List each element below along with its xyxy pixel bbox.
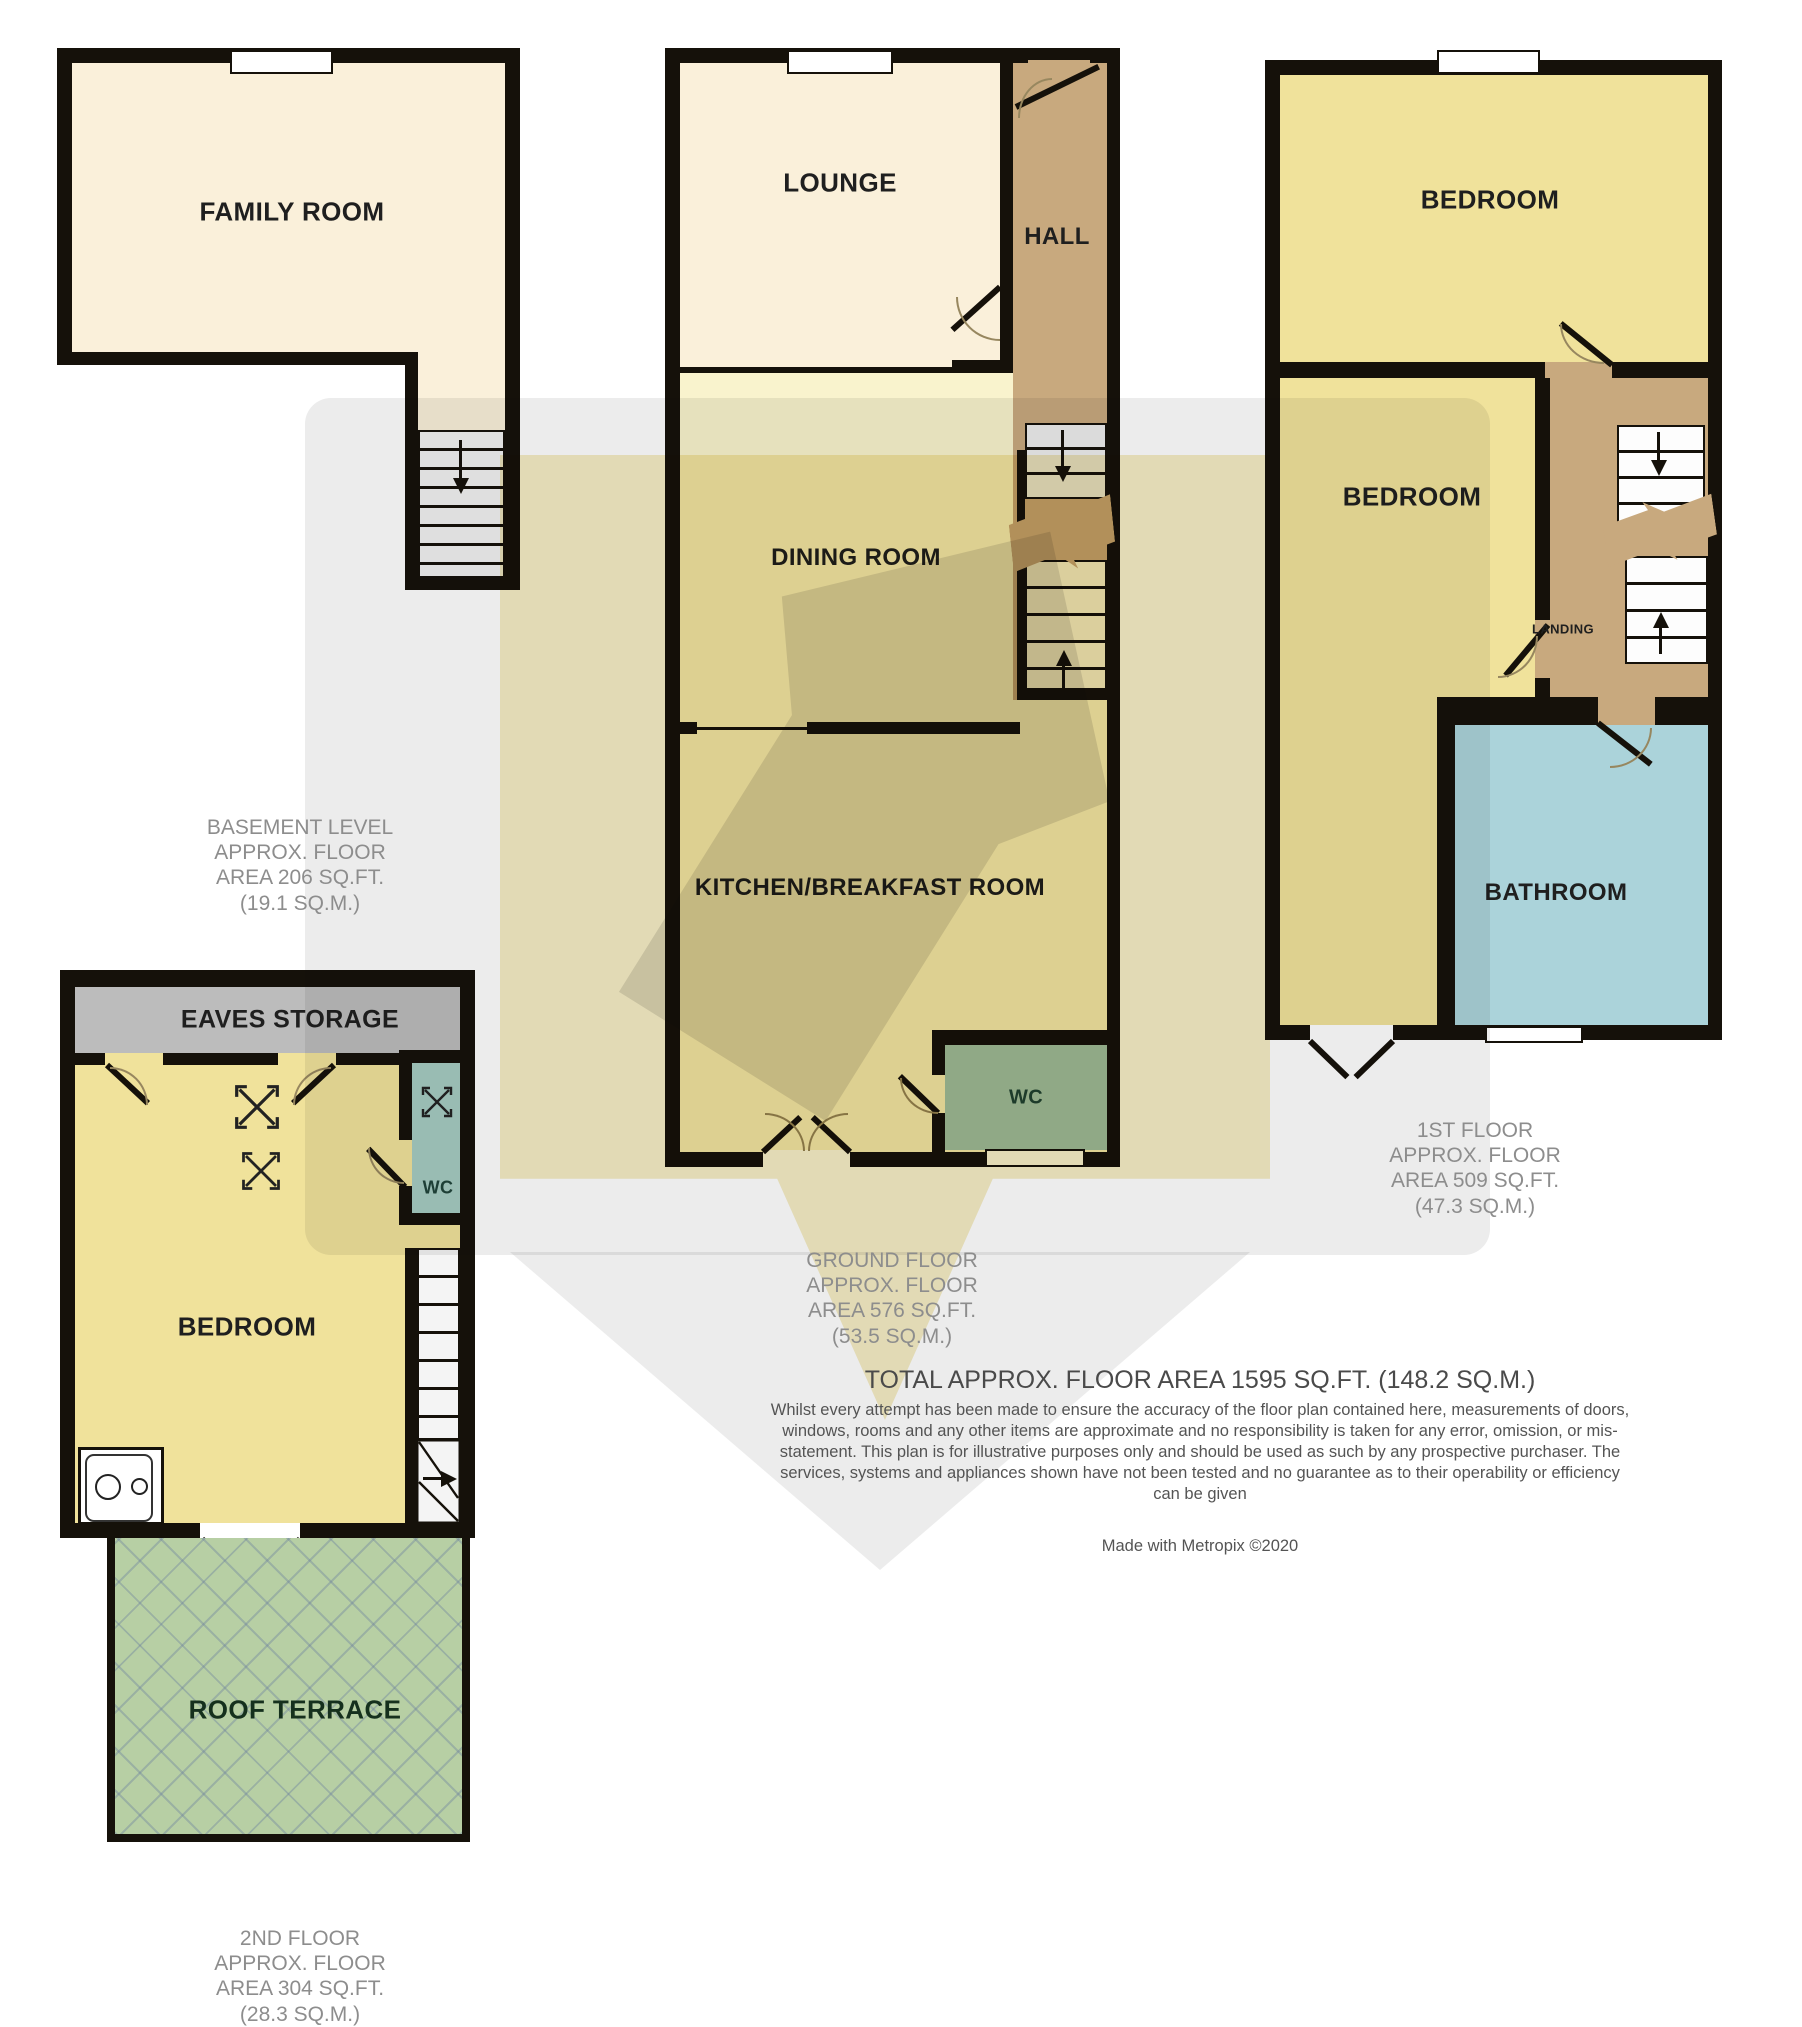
basement-area-label: BASEMENT LEVEL APPROX. FLOOR AREA 206 SQ…	[130, 815, 470, 916]
family-room-label: FAMILY ROOM	[200, 197, 385, 228]
terrace-french-door-gap	[200, 1523, 300, 1538]
landing-label: LANDING	[1532, 622, 1594, 637]
lounge-floor	[680, 63, 1000, 367]
bedroom-back-label: BEDROOM	[1343, 482, 1482, 513]
sloped-ceiling-marker-icon	[228, 1078, 286, 1136]
ground-stairs-down-shaft	[1061, 430, 1064, 468]
shower-drain-icon	[131, 1478, 148, 1495]
shower-head-icon	[95, 1474, 121, 1500]
family-room-window	[230, 50, 333, 74]
bedroom-landing-wall-upper	[1535, 378, 1550, 620]
basement-stairs-arrow-shaft	[459, 440, 462, 480]
ground-stairs-up-shaft	[1062, 664, 1065, 690]
kitchen-label: KITCHEN/BREAKFAST ROOM	[695, 874, 1045, 902]
credit-text: Made with Metropix ©2020	[770, 1536, 1630, 1557]
first-area-label: 1ST FLOOR APPROX. FLOOR AREA 509 SQ.FT. …	[1305, 1118, 1645, 1219]
ground-stairs-down-arrow-icon	[1055, 466, 1071, 482]
second-wc-bottom-wall	[399, 1213, 460, 1225]
bedroom-back-floor-lower	[1280, 697, 1437, 1025]
bedroom-back-french-right-leaf	[1354, 1039, 1396, 1079]
roof-terrace-floor	[115, 1538, 462, 1834]
second-wc-top-wall	[399, 1050, 460, 1063]
bedroom-divider-wall-right	[1612, 362, 1722, 378]
second-area-label: 2ND FLOOR APPROX. FLOOR AREA 304 SQ.FT. …	[130, 1926, 470, 2027]
eaves-wall-b	[163, 1053, 278, 1065]
wc-left-wall-a	[932, 1045, 945, 1075]
lounge-label: LOUNGE	[783, 168, 897, 199]
eaves-wall-a	[75, 1053, 105, 1065]
bathroom-left-wall	[1437, 725, 1455, 1025]
dining-kitchen-opening-line	[697, 727, 807, 730]
second-wc-left-wall-b	[399, 1186, 412, 1213]
bedroom-back-french-left-leaf	[1308, 1039, 1350, 1079]
eaves-door-gap-right	[278, 1053, 336, 1065]
wc-top-wall	[932, 1030, 1120, 1045]
first-stairs-down-shaft	[1657, 432, 1660, 462]
first-stairs-down-arrow-icon	[1651, 460, 1667, 476]
lounge-dining-divider-line	[680, 367, 952, 370]
lounge-window	[787, 50, 893, 74]
second-wc-label: WC	[423, 1178, 454, 1199]
kitchen-rear-window	[985, 1149, 1085, 1167]
eaves-door-gap-left	[105, 1053, 163, 1065]
hall-wall-upper	[1000, 63, 1013, 287]
bedroom-landing-wall-lower	[1535, 678, 1550, 697]
eaves-storage-label: EAVES STORAGE	[181, 1006, 399, 1035]
second-stairs	[417, 1248, 460, 1440]
ground-area-label: GROUND FLOOR APPROX. FLOOR AREA 576 SQ.F…	[722, 1248, 1062, 1349]
second-wc-left-wall-a	[399, 1063, 412, 1140]
roof-terrace-label: ROOF TERRACE	[189, 1695, 402, 1726]
first-stairs-up-shaft	[1659, 626, 1662, 654]
bedroom-front-floor	[1280, 75, 1708, 362]
bedroom-back-floor-upper	[1280, 378, 1535, 697]
bedroom-divider-wall-left	[1265, 362, 1545, 378]
first-stairs-lower-flight	[1625, 556, 1708, 664]
ground-stair-bottom-wall	[1017, 690, 1107, 700]
dining-kitchen-pier	[665, 722, 697, 734]
dining-room-label: DINING ROOM	[771, 544, 941, 572]
bathroom-top-wall-left	[1437, 697, 1598, 725]
disclaimer-text: Whilst every attempt has been made to en…	[770, 1400, 1630, 1505]
kitchen-french-door-gap	[763, 1150, 850, 1167]
bedroom-front-door-gap	[1545, 362, 1612, 378]
bedroom-back-french-door-gap	[1310, 1025, 1393, 1040]
bathroom-window	[1485, 1026, 1583, 1043]
bedroom-front-label: BEDROOM	[1421, 185, 1560, 216]
sloped-ceiling-marker-icon	[417, 1082, 457, 1122]
second-stairs-arrow-shaft	[423, 1477, 443, 1480]
bedroom-front-window	[1437, 50, 1540, 74]
total-area-text: TOTAL APPROX. FLOOR AREA 1595 SQ.FT. (14…	[800, 1366, 1600, 1395]
wc-left-wall-b	[932, 1113, 945, 1152]
bathroom-floor	[1455, 725, 1708, 1025]
second-bedroom-label: BEDROOM	[178, 1312, 317, 1343]
bathroom-top-wall-right	[1655, 697, 1722, 725]
lounge-dining-divider-wall	[952, 360, 1003, 373]
dining-kitchen-wall	[807, 722, 1020, 734]
second-stairs-right-arrow-icon	[441, 1471, 457, 1487]
basement-stairs-down-arrow-icon	[453, 478, 469, 494]
floorplan-page: { "document": { "type": "estate-agent fl…	[0, 0, 1802, 2025]
sloped-ceiling-marker-icon	[232, 1146, 290, 1196]
wc-label: WC	[1009, 1087, 1043, 1110]
ground-stairs-lower-flight	[1025, 560, 1107, 690]
second-stair-left-wall	[405, 1248, 417, 1523]
hall-label: HALL	[1024, 223, 1090, 251]
ground-stairs-upper-flight	[1025, 423, 1107, 499]
bathroom-label: BATHROOM	[1485, 879, 1628, 907]
bathroom-door-gap	[1598, 697, 1655, 725]
